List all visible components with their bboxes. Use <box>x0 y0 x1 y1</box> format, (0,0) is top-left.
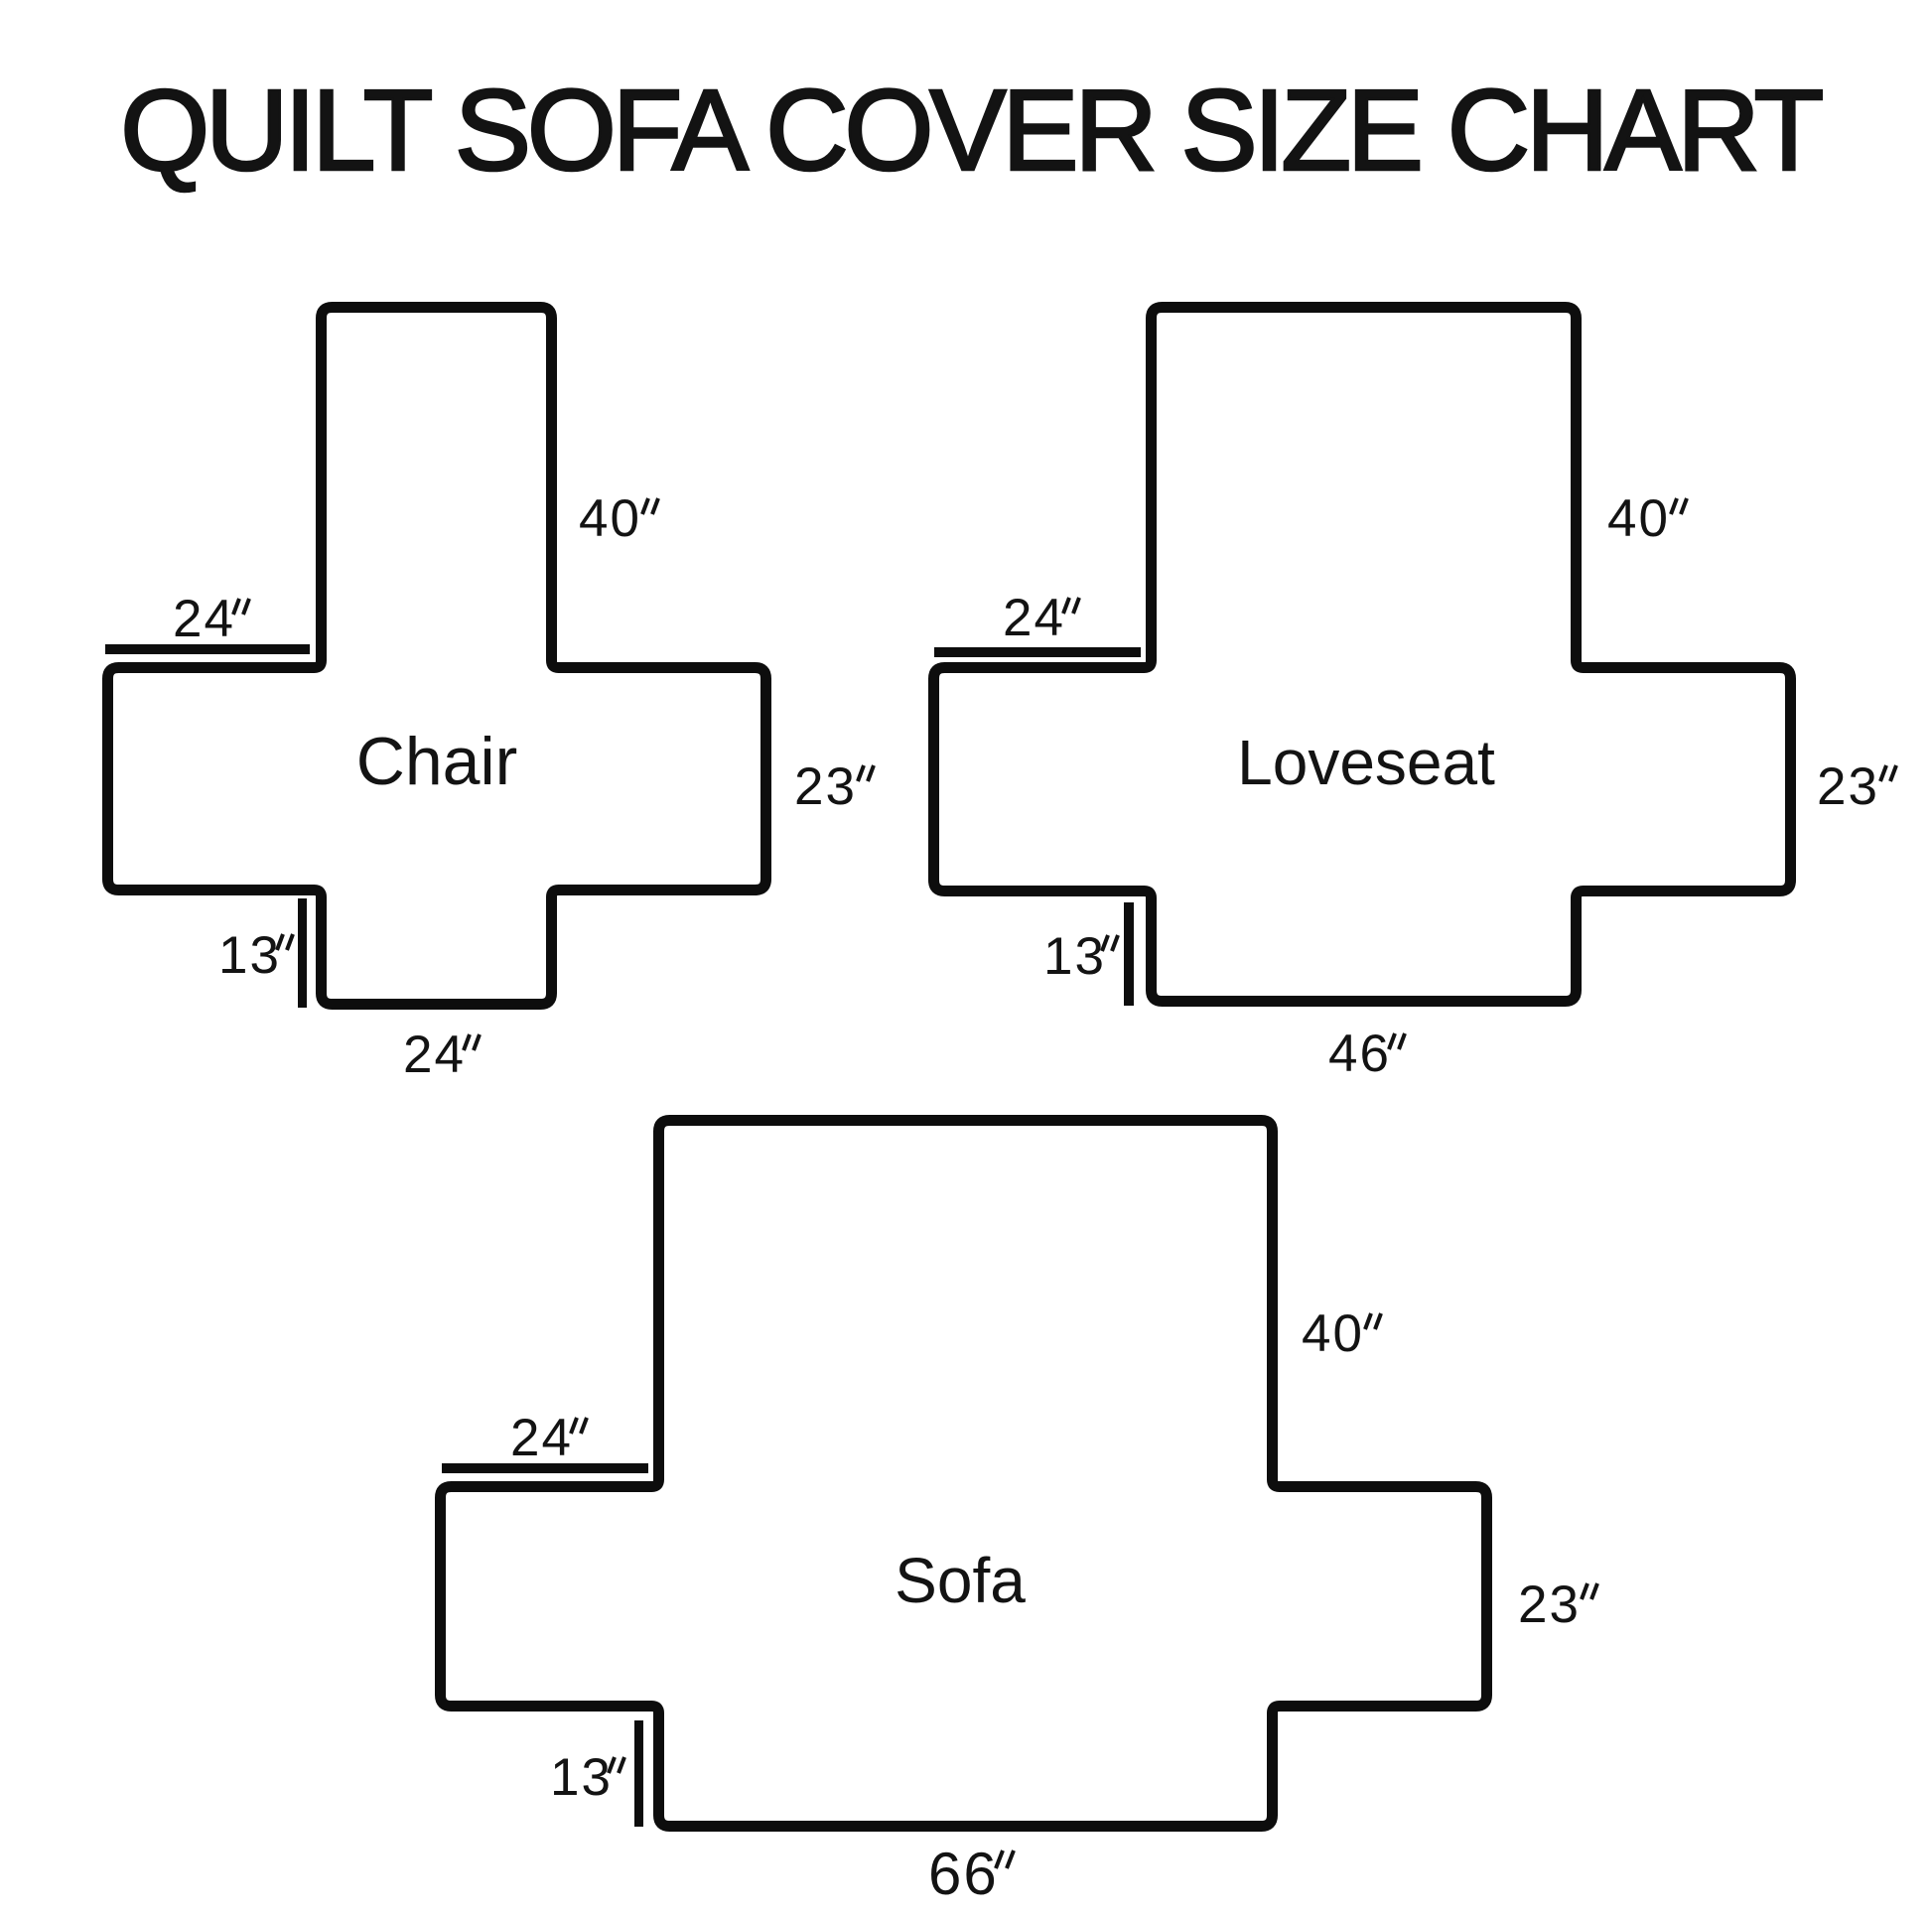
svg-text:13: 13 <box>218 926 281 985</box>
svg-text:23: 23 <box>1817 757 1879 816</box>
svg-text:46: 46 <box>1328 1025 1391 1083</box>
svg-text:Loveseat: Loveseat <box>1237 727 1495 798</box>
svg-text:24: 24 <box>510 1409 573 1467</box>
svg-text:Chair: Chair <box>356 724 518 799</box>
svg-text:Sofa: Sofa <box>895 1545 1026 1616</box>
svg-text:24: 24 <box>1003 589 1065 647</box>
svg-text:QUILT SOFA COVER SIZE CHART: QUILT SOFA COVER SIZE CHART <box>120 66 1822 195</box>
svg-text:23: 23 <box>1518 1575 1581 1634</box>
svg-text:24: 24 <box>173 590 235 648</box>
svg-text:23: 23 <box>794 757 857 816</box>
svg-text:40: 40 <box>1302 1304 1364 1363</box>
svg-text:13: 13 <box>550 1748 613 1807</box>
svg-text:66: 66 <box>928 1841 999 1907</box>
svg-text:40: 40 <box>1607 489 1670 548</box>
svg-text:13: 13 <box>1043 927 1106 986</box>
svg-text:40: 40 <box>579 489 641 548</box>
svg-text:24: 24 <box>403 1026 466 1084</box>
